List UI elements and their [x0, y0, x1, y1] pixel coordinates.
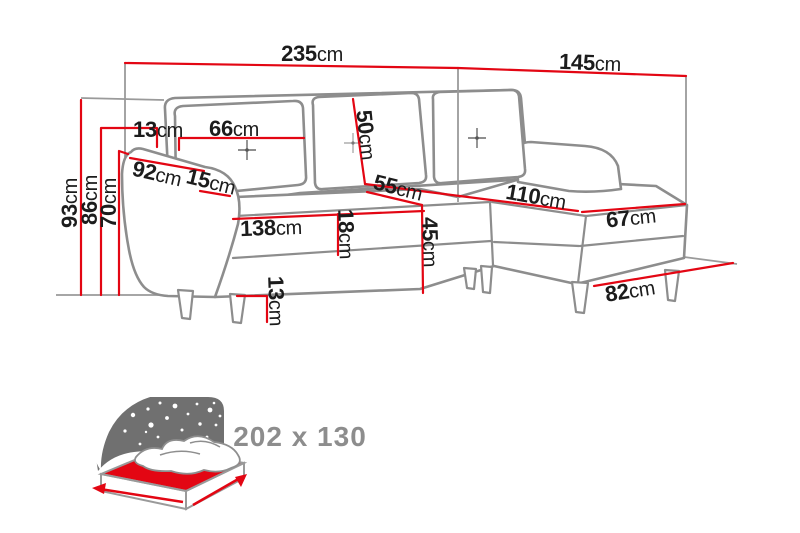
dim-label-66: 66cm [209, 116, 259, 142]
dim-label-13-leg: 13cm [262, 276, 290, 327]
dim-label-50: 50cm [350, 109, 381, 161]
tuft-button [245, 148, 249, 152]
dim-label-138: 138cm [240, 214, 303, 242]
diagram-canvas [0, 0, 800, 533]
leg [481, 266, 492, 293]
leg [572, 282, 588, 313]
dim-label-70: 70cm [96, 178, 122, 228]
arrow-head-left [92, 483, 106, 494]
sofa-dimension-diagram: 235cm 145cm 93cm 86cm 70cm 13cm 66cm 92c… [0, 0, 800, 533]
extension-line-top [81, 98, 164, 100]
tuft-button [475, 136, 479, 140]
dim-label-45: 45cm [416, 217, 444, 268]
bed-size-label: 202 x 130 [233, 421, 367, 453]
dim-label-235: 235cm [281, 41, 343, 67]
dim-label-18: 18cm [332, 209, 360, 260]
dim-label-145: 145cm [559, 49, 622, 77]
sofa-line-art [122, 90, 687, 323]
back-cushion-right [433, 90, 525, 183]
leg [178, 290, 193, 319]
dim-label-13-top: 13cm [133, 117, 183, 143]
sofa-bed-icon [91, 395, 247, 509]
leg [464, 268, 476, 289]
leg [230, 294, 245, 323]
dim-label-67: 67cm [605, 202, 657, 233]
